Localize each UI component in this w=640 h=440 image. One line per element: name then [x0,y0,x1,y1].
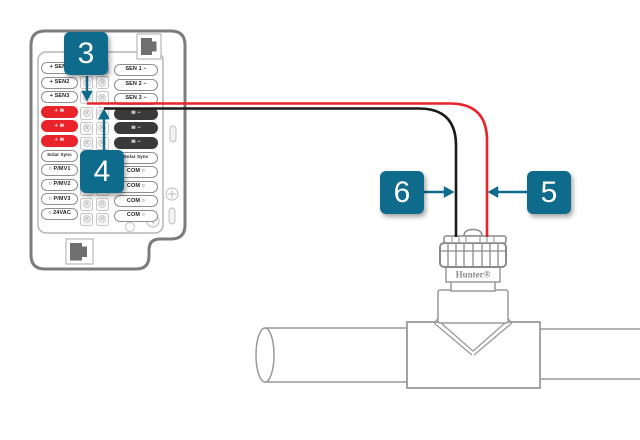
callout-leader-lines [83,76,527,196]
callout-6: 6 [380,171,424,214]
leader-4-arrowhead [100,111,108,118]
callout-number: 6 [394,176,411,210]
flow-sensor-wiring-diagram: Hunter® + SEN1 + SEN2 + SEN3 + ≋ + ≋ + ≋… [0,0,640,440]
leader-6-arrowhead [445,188,452,196]
callout-5: 5 [527,171,571,214]
callout-number: 4 [94,155,111,189]
callout-number: 3 [78,37,95,71]
leader-5-arrowhead [490,188,497,196]
leader-3-arrowhead [83,92,91,99]
callout-3: 3 [64,32,108,75]
callout-number: 5 [541,176,558,210]
sensor-wire-red [87,104,487,238]
callout-4: 4 [80,150,124,193]
